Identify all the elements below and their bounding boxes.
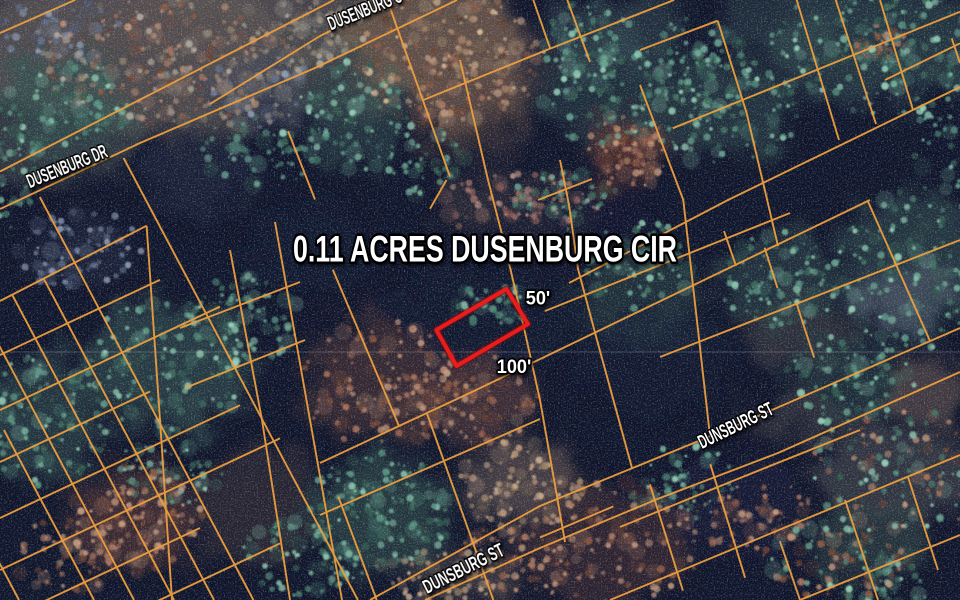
svg-text:0.11 ACRES DUSENBURG CIR: 0.11 ACRES DUSENBURG CIR — [293, 228, 677, 270]
svg-text:100': 100' — [497, 357, 532, 378]
svg-text:50': 50' — [526, 289, 551, 310]
